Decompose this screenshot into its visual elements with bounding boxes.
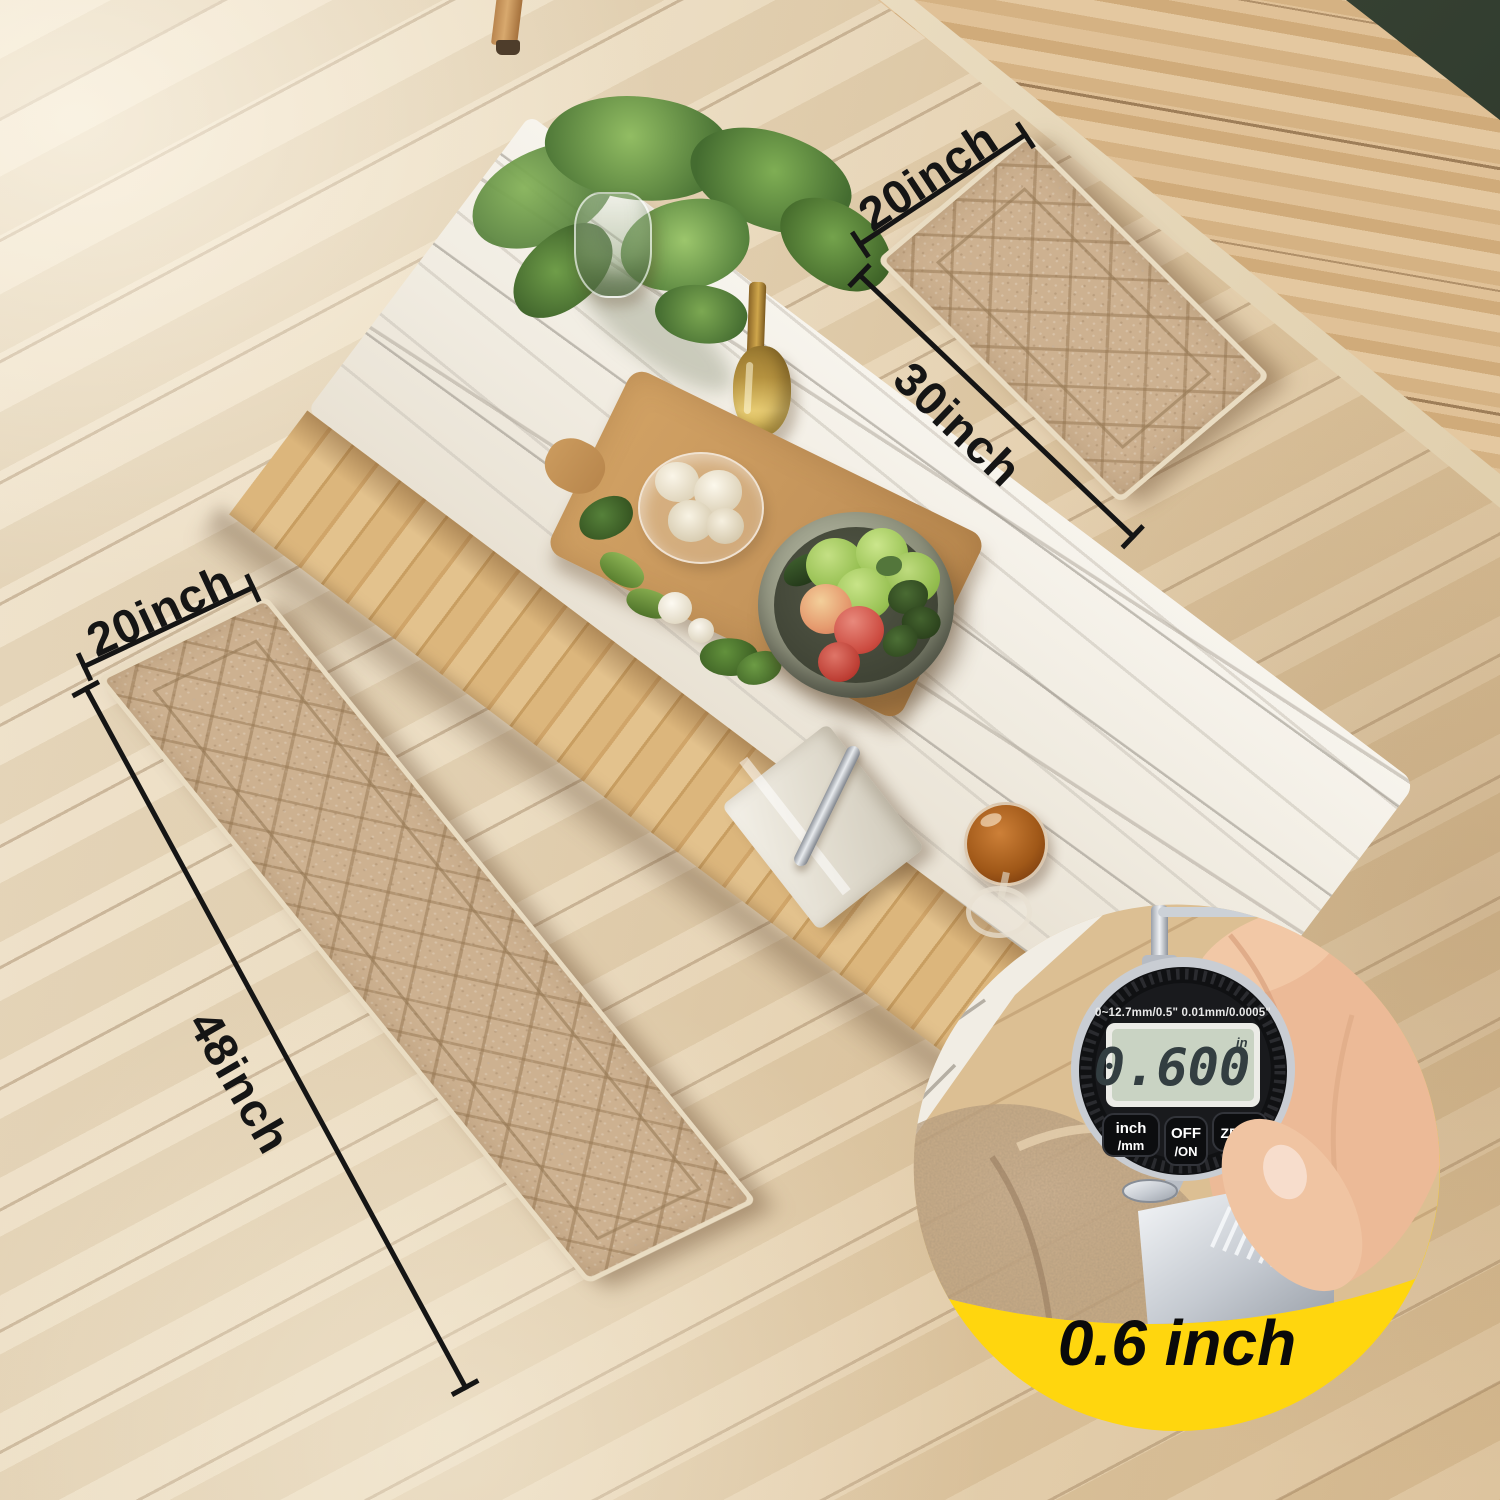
gauge-spec-text: 0~12.7mm/0.5" 0.01mm/0.0005": [1095, 1007, 1271, 1019]
button-off-on-label2: /ON: [1174, 1144, 1197, 1159]
thickness-badge: 0~12.7mm/0.5" 0.01mm/0.0005" 0.600 in in…: [900, 895, 1460, 1455]
kitchen-product-photo: 20inch 30inch 20inch 48inch: [0, 0, 1500, 1500]
garlic: [655, 462, 699, 502]
mozzarella-ball: [658, 592, 692, 624]
lcd-value: 0.600: [1094, 1038, 1251, 1098]
gauge-anvil: [1123, 1180, 1177, 1202]
photo-glass-foot: [932, 895, 1044, 930]
badge-value-label: 0.6 inch: [1058, 1307, 1296, 1379]
plant-vase: [574, 192, 652, 298]
button-off-on-label1: OFF: [1171, 1125, 1201, 1142]
garlic: [706, 508, 744, 544]
button-inch-mm-label2: /mm: [1118, 1138, 1145, 1153]
mozzarella-ball: [688, 618, 714, 643]
gauge-stem-crossbar: [1158, 907, 1264, 917]
stool-leg-foot: [496, 40, 520, 55]
lcd-unit: in: [1236, 1035, 1248, 1050]
red-apple: [818, 642, 860, 682]
button-inch-mm-label1: inch: [1116, 1120, 1147, 1137]
